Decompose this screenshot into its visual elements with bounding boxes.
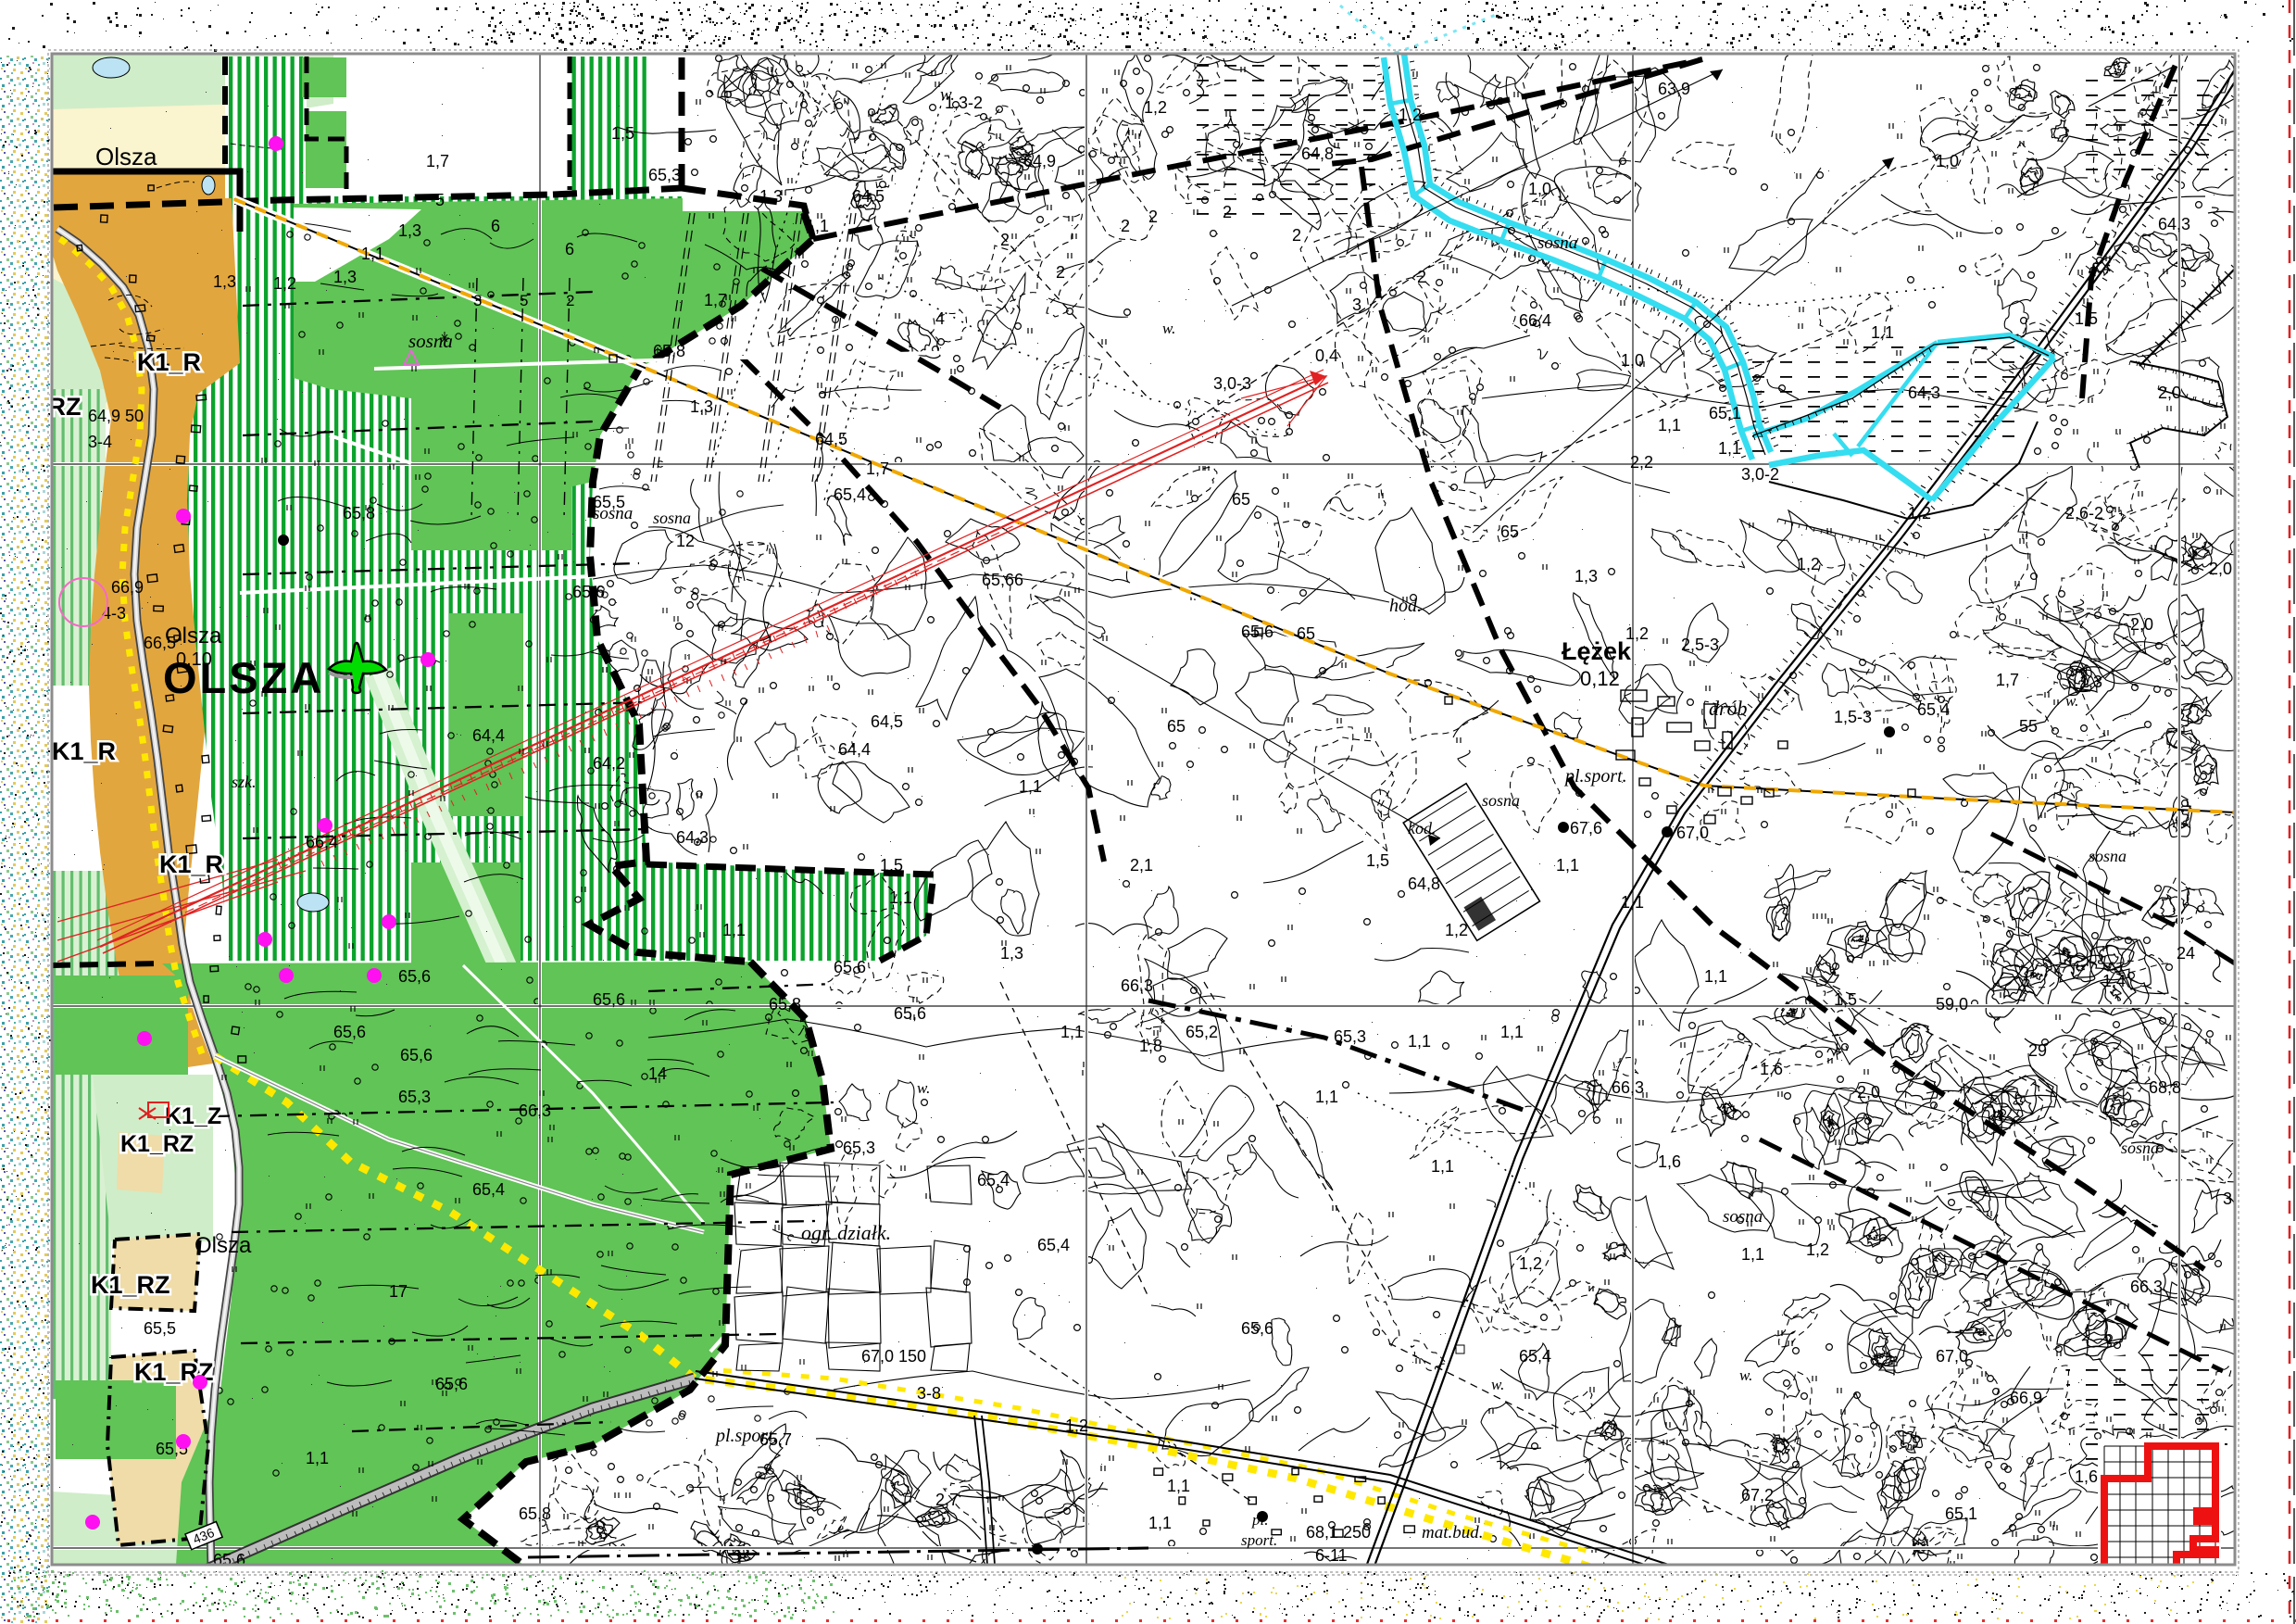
svg-text:66,5: 66,5 bbox=[144, 634, 176, 652]
svg-text:sosna: sosna bbox=[653, 509, 691, 527]
svg-text:65,6: 65,6 bbox=[834, 958, 866, 976]
svg-text:66,9: 66,9 bbox=[111, 578, 144, 597]
svg-text:3-8: 3-8 bbox=[917, 1384, 941, 1403]
svg-text:65,6: 65,6 bbox=[398, 967, 431, 986]
svg-text:29: 29 bbox=[2028, 1041, 2047, 1060]
svg-text:drób: drób bbox=[1709, 697, 1748, 720]
svg-text:pl.sport.: pl.sport. bbox=[1563, 766, 1627, 787]
svg-text:1,1: 1,1 bbox=[1658, 416, 1681, 434]
svg-text:K1_R: K1_R bbox=[159, 850, 223, 878]
svg-text:hod.: hod. bbox=[1389, 596, 1422, 616]
svg-text:64,3: 64,3 bbox=[1908, 384, 1940, 402]
svg-text:65,6: 65,6 bbox=[333, 1023, 366, 1041]
svg-text:2,6-2: 2,6-2 bbox=[2065, 504, 2103, 522]
svg-text:65,6: 65,6 bbox=[435, 1375, 468, 1393]
svg-text:14: 14 bbox=[648, 1064, 667, 1083]
svg-text:1,0: 1,0 bbox=[1528, 180, 1551, 198]
svg-text:1,3: 1,3 bbox=[213, 272, 236, 291]
svg-text:w.: w. bbox=[1491, 1376, 1504, 1393]
svg-text:1,1: 1,1 bbox=[806, 217, 829, 235]
svg-text:1,7: 1,7 bbox=[704, 291, 727, 309]
svg-text:K1_RZ: K1_RZ bbox=[91, 1271, 170, 1299]
svg-text:1,1: 1,1 bbox=[1741, 1245, 1764, 1264]
svg-text:1,2: 1,2 bbox=[1908, 504, 1931, 522]
svg-text:1,1: 1,1 bbox=[361, 245, 384, 263]
svg-text:65,4: 65,4 bbox=[1519, 1347, 1551, 1366]
svg-text:64,9 50: 64,9 50 bbox=[88, 407, 144, 425]
svg-text:1,2: 1,2 bbox=[1519, 1254, 1542, 1273]
svg-text:17: 17 bbox=[389, 1282, 408, 1301]
svg-text:66,3: 66,3 bbox=[2130, 1278, 2163, 1296]
svg-text:65,8: 65,8 bbox=[653, 342, 685, 360]
svg-text:1,1: 1,1 bbox=[1500, 1023, 1524, 1041]
svg-text:2,5-3: 2,5-3 bbox=[1681, 636, 1719, 654]
svg-text:1,0: 1,0 bbox=[1936, 152, 1959, 170]
svg-text:1,1: 1,1 bbox=[722, 921, 746, 939]
svg-text:1,1: 1,1 bbox=[1019, 777, 1042, 796]
svg-text:1,3: 1,3 bbox=[690, 397, 713, 416]
svg-text:66,3: 66,3 bbox=[1612, 1078, 1644, 1097]
svg-text:65: 65 bbox=[1500, 522, 1519, 541]
svg-text:1,2: 1,2 bbox=[1625, 624, 1649, 643]
svg-text:1,5: 1,5 bbox=[1834, 990, 1857, 1009]
svg-text:0,12: 0,12 bbox=[1580, 667, 1620, 690]
svg-text:1,1: 1,1 bbox=[889, 888, 912, 907]
svg-text:2: 2 bbox=[1056, 263, 1065, 282]
svg-text:w.: w. bbox=[2065, 692, 2078, 710]
svg-text:65,3: 65,3 bbox=[1334, 1027, 1366, 1046]
svg-text:3,0-2: 3,0-2 bbox=[1741, 465, 1779, 484]
svg-text:66,3: 66,3 bbox=[1121, 976, 1153, 995]
svg-text:2: 2 bbox=[1223, 203, 1232, 221]
svg-text:1,1: 1,1 bbox=[1148, 1514, 1172, 1532]
svg-text:64,9: 64,9 bbox=[1023, 152, 1056, 170]
svg-text:2,1: 2,1 bbox=[1130, 856, 1153, 875]
svg-text:65,4: 65,4 bbox=[1917, 700, 1950, 719]
svg-text:64,3: 64,3 bbox=[2158, 215, 2190, 233]
svg-text:65: 65 bbox=[1232, 490, 1250, 509]
svg-text:1,2: 1,2 bbox=[1399, 106, 1422, 124]
svg-text:66,9: 66,9 bbox=[2010, 1389, 2042, 1407]
svg-text:65,5: 65,5 bbox=[144, 1319, 176, 1338]
svg-text:1,2: 1,2 bbox=[1065, 1416, 1088, 1435]
svg-text:1,7: 1,7 bbox=[426, 152, 449, 170]
svg-text:24: 24 bbox=[2177, 944, 2195, 963]
svg-text:1,2: 1,2 bbox=[1144, 98, 1167, 117]
svg-text:66,3: 66,3 bbox=[519, 1102, 551, 1120]
svg-text:w.: w. bbox=[1162, 320, 1175, 337]
svg-text:1,1: 1,1 bbox=[1556, 856, 1579, 875]
svg-text:64,3: 64,3 bbox=[676, 828, 709, 847]
svg-text:sosna: sosna bbox=[1482, 791, 1520, 810]
svg-text:65,3: 65,3 bbox=[648, 166, 681, 184]
svg-text:55: 55 bbox=[2019, 717, 2038, 736]
svg-text:4: 4 bbox=[935, 309, 945, 328]
svg-text:K1_R: K1_R bbox=[137, 348, 201, 376]
svg-text:65,8: 65,8 bbox=[343, 504, 375, 522]
svg-text:2: 2 bbox=[566, 292, 574, 309]
svg-text:1,1: 1,1 bbox=[1871, 323, 1894, 342]
svg-text:2,0: 2,0 bbox=[2130, 615, 2153, 634]
svg-text:1,3: 1,3 bbox=[2079, 673, 2102, 691]
svg-text:1,5: 1,5 bbox=[1366, 851, 1389, 870]
svg-text:1,6: 1,6 bbox=[2075, 1467, 2098, 1486]
svg-text:68,1 250: 68,1 250 bbox=[1306, 1523, 1371, 1542]
svg-text:1,1: 1,1 bbox=[1431, 1157, 1454, 1176]
svg-text:65,1: 65,1 bbox=[1945, 1504, 1977, 1523]
svg-text:3-4: 3-4 bbox=[88, 433, 112, 451]
svg-text:65,2: 65,2 bbox=[1186, 1023, 1218, 1041]
svg-text:65,66: 65,66 bbox=[982, 571, 1023, 589]
svg-text:2,2: 2,2 bbox=[1630, 453, 1653, 472]
svg-text:1,3: 1,3 bbox=[1000, 944, 1023, 963]
svg-text:65,8: 65,8 bbox=[769, 995, 801, 1013]
svg-text:sosna: sosna bbox=[2121, 1139, 2159, 1157]
svg-text:sosna: sosna bbox=[1537, 233, 1577, 253]
svg-text:67,6: 67,6 bbox=[1570, 819, 1602, 837]
svg-text:1,3: 1,3 bbox=[398, 221, 421, 240]
svg-text:59,0: 59,0 bbox=[1936, 995, 1968, 1013]
svg-text:1,2: 1,2 bbox=[273, 274, 296, 293]
svg-text:65,6: 65,6 bbox=[593, 990, 625, 1009]
svg-text:1,1: 1,1 bbox=[1621, 893, 1644, 912]
svg-text:65,6: 65,6 bbox=[572, 583, 605, 601]
svg-text:3: 3 bbox=[473, 292, 482, 309]
svg-text:sosna: sosna bbox=[2089, 847, 2127, 865]
svg-text:65,5: 65,5 bbox=[593, 493, 625, 511]
svg-text:szk.: szk. bbox=[232, 773, 257, 791]
svg-text:5: 5 bbox=[435, 191, 445, 209]
svg-text:1,3: 1,3 bbox=[1575, 567, 1598, 585]
svg-text:1,2: 1,2 bbox=[1797, 555, 1820, 573]
svg-text:1,5-3: 1,5-3 bbox=[1834, 708, 1872, 726]
svg-text:5: 5 bbox=[520, 292, 528, 309]
svg-text:mat.bud.: mat.bud. bbox=[1422, 1523, 1484, 1542]
svg-text:64,8: 64,8 bbox=[1301, 145, 1334, 163]
svg-text:2: 2 bbox=[1000, 231, 1010, 249]
svg-text:65,4: 65,4 bbox=[834, 485, 866, 504]
svg-text:1,5: 1,5 bbox=[611, 124, 634, 143]
svg-text:0,4: 0,4 bbox=[1315, 346, 1338, 365]
svg-text:65,4: 65,4 bbox=[472, 1180, 505, 1199]
svg-text:sosna: sosna bbox=[1723, 1207, 1763, 1227]
svg-text:65,6: 65,6 bbox=[1241, 623, 1273, 641]
svg-text:67,2: 67,2 bbox=[1741, 1486, 1774, 1504]
svg-text:w.: w. bbox=[917, 1079, 930, 1097]
svg-text:1,3: 1,3 bbox=[333, 268, 357, 286]
svg-text:1,2: 1,2 bbox=[1445, 921, 1468, 939]
svg-text:1,1: 1,1 bbox=[306, 1449, 329, 1467]
svg-text:2,0: 2,0 bbox=[2209, 560, 2232, 578]
svg-text:1,5: 1,5 bbox=[2075, 309, 2098, 328]
svg-text:3,0-3: 3,0-3 bbox=[1213, 374, 1251, 393]
svg-text:65,3: 65,3 bbox=[398, 1088, 431, 1106]
svg-text:64,4: 64,4 bbox=[472, 726, 505, 745]
svg-text:65,3: 65,3 bbox=[843, 1139, 875, 1157]
svg-text:ogr. działk.: ogr. działk. bbox=[801, 1221, 891, 1244]
svg-text:65,4: 65,4 bbox=[977, 1171, 1010, 1190]
svg-text:6: 6 bbox=[491, 217, 500, 235]
svg-text:1,1: 1,1 bbox=[1408, 1032, 1431, 1051]
svg-text:1,7: 1,7 bbox=[866, 460, 889, 478]
svg-text:6-11: 6-11 bbox=[1315, 1546, 1348, 1565]
svg-text:64,5: 64,5 bbox=[815, 430, 847, 448]
svg-text:1,3-2: 1,3-2 bbox=[945, 94, 983, 112]
svg-text:kod.: kod. bbox=[1408, 819, 1437, 837]
svg-text:w.: w. bbox=[1739, 1366, 1752, 1384]
svg-text:K1_R: K1_R bbox=[52, 737, 116, 765]
svg-text:2,7: 2,7 bbox=[935, 1491, 959, 1509]
svg-text:67,0: 67,0 bbox=[1936, 1347, 1968, 1366]
svg-text:1,1: 1,1 bbox=[1060, 1023, 1084, 1041]
svg-text:2,0: 2,0 bbox=[1857, 1083, 1880, 1102]
svg-text:Olsza: Olsza bbox=[194, 1233, 252, 1258]
svg-text:1,6: 1,6 bbox=[1760, 1060, 1783, 1078]
svg-text:1,1: 1,1 bbox=[1704, 967, 1727, 986]
svg-text:65,6: 65,6 bbox=[894, 1004, 926, 1023]
svg-text:1,6: 1,6 bbox=[1658, 1152, 1681, 1171]
svg-text:1,1: 1,1 bbox=[1315, 1088, 1338, 1106]
svg-text:65: 65 bbox=[1167, 717, 1186, 736]
svg-text:K1_Z: K1_Z bbox=[165, 1103, 221, 1129]
svg-text:65,1: 65,1 bbox=[1709, 404, 1741, 422]
svg-text:65,8: 65,8 bbox=[519, 1504, 551, 1523]
svg-text:65,7: 65,7 bbox=[759, 1430, 792, 1449]
svg-text:1,1: 1,1 bbox=[1718, 439, 1741, 458]
svg-text:66,4: 66,4 bbox=[1519, 311, 1551, 330]
svg-text:1,5: 1,5 bbox=[880, 856, 903, 875]
svg-text:64,5: 64,5 bbox=[852, 187, 885, 206]
svg-text:2: 2 bbox=[1148, 208, 1158, 226]
svg-text:Olsza: Olsza bbox=[95, 143, 157, 170]
svg-text:63,9: 63,9 bbox=[1658, 80, 1690, 98]
svg-text:1,2: 1,2 bbox=[1806, 1240, 1829, 1259]
svg-text:64,5: 64,5 bbox=[871, 712, 903, 731]
svg-text:2: 2 bbox=[1292, 226, 1301, 245]
svg-text:64,4: 64,4 bbox=[838, 740, 871, 759]
svg-text:64,8: 64,8 bbox=[1408, 875, 1440, 893]
svg-text:1,8: 1,8 bbox=[1139, 1037, 1162, 1055]
svg-text:6: 6 bbox=[565, 240, 574, 258]
svg-text:65,6: 65,6 bbox=[1241, 1319, 1273, 1338]
svg-text:65,4: 65,4 bbox=[1037, 1236, 1070, 1254]
svg-text:K1_RZ: K1_RZ bbox=[120, 1131, 194, 1157]
svg-text:64,2: 64,2 bbox=[593, 754, 625, 773]
svg-text:2: 2 bbox=[1121, 217, 1130, 235]
svg-text:65: 65 bbox=[1297, 624, 1315, 643]
svg-text:0,10: 0,10 bbox=[176, 649, 212, 670]
svg-text:12: 12 bbox=[676, 532, 695, 550]
svg-text:68,8: 68,8 bbox=[2149, 1078, 2181, 1097]
svg-text:1,7: 1,7 bbox=[1996, 671, 2019, 689]
svg-text:66,4: 66,4 bbox=[306, 833, 338, 851]
svg-text:sport.: sport. bbox=[1241, 1531, 1277, 1549]
svg-text:1,4: 1,4 bbox=[2102, 972, 2126, 990]
svg-text:3: 3 bbox=[1352, 296, 1361, 314]
svg-text:2,0: 2,0 bbox=[2158, 384, 2181, 402]
svg-text:Łężek: Łężek bbox=[1562, 637, 1632, 665]
svg-text:65,6: 65,6 bbox=[400, 1046, 433, 1064]
svg-text:67,0: 67,0 bbox=[1676, 824, 1709, 842]
svg-text:2: 2 bbox=[1417, 268, 1426, 286]
svg-text:67,0 150: 67,0 150 bbox=[861, 1347, 926, 1366]
svg-text:1,1: 1,1 bbox=[1167, 1477, 1190, 1495]
svg-text:1,3: 1,3 bbox=[759, 187, 783, 206]
svg-text:1,0: 1,0 bbox=[1621, 351, 1644, 370]
